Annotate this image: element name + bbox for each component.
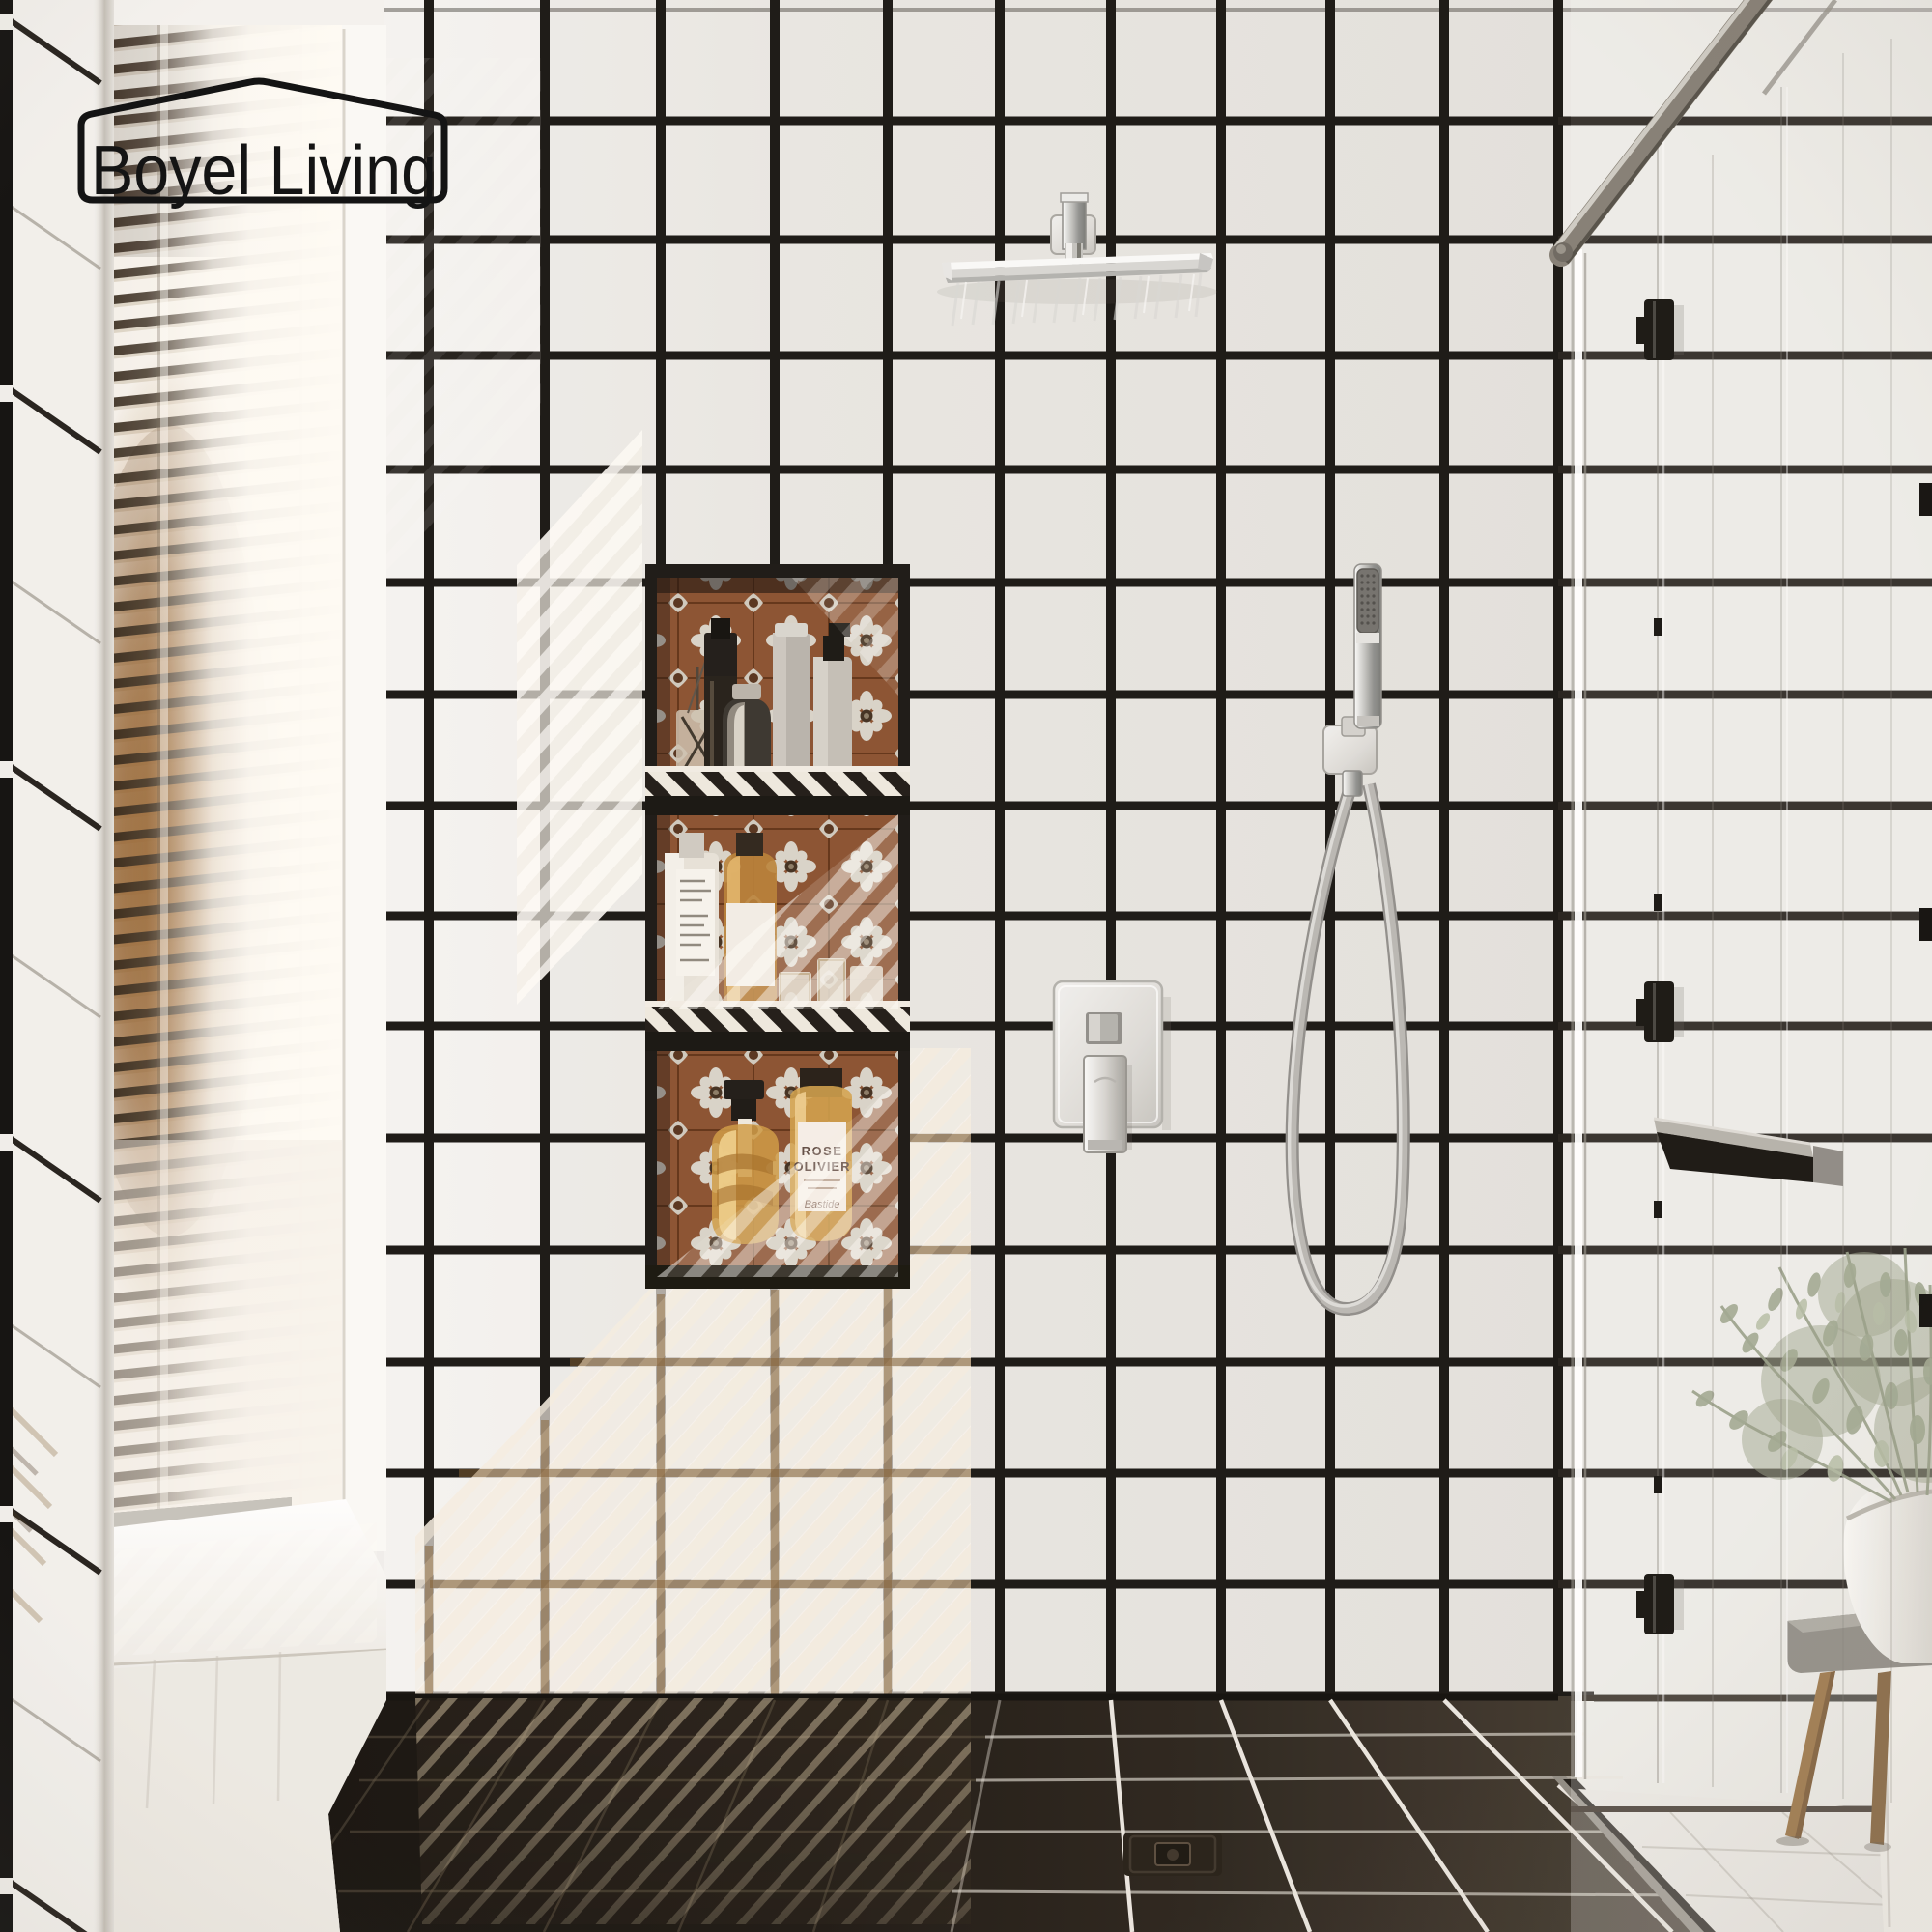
svg-text:Boyel Living: Boyel Living xyxy=(91,132,437,210)
